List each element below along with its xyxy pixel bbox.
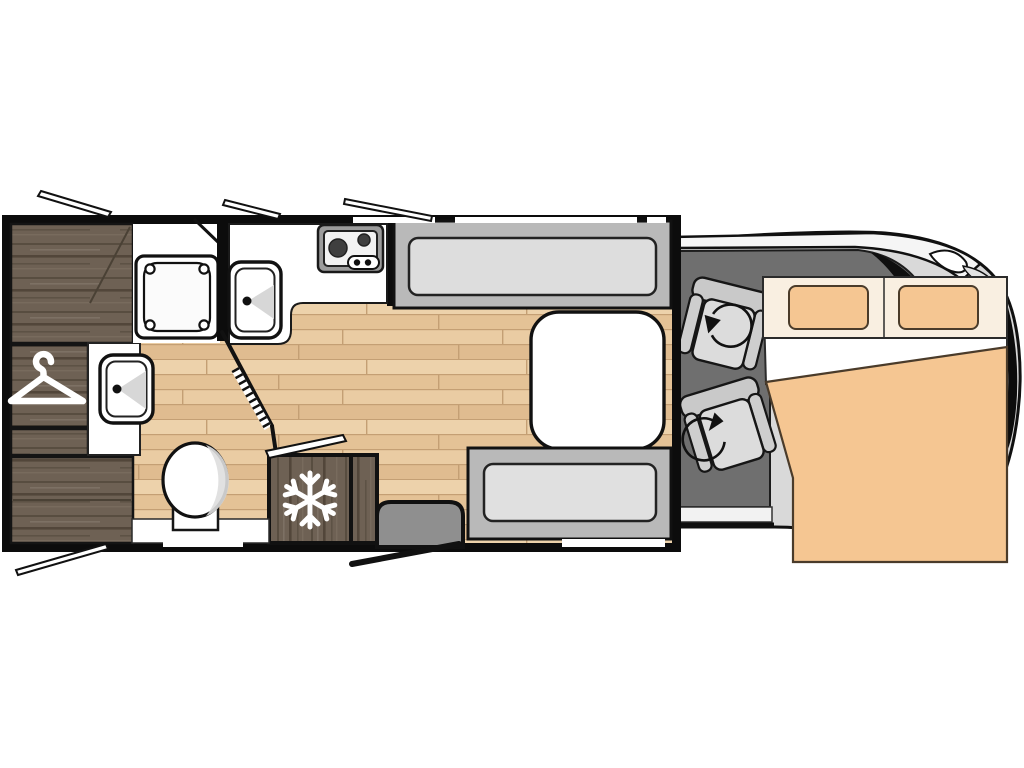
- wardrobe: [11, 345, 88, 427]
- window-top-corner: [647, 217, 666, 223]
- kitchen-sink: [229, 262, 281, 338]
- burner-large-icon: [329, 239, 347, 257]
- window-bottom-bathroom: [163, 539, 243, 547]
- shower-tray: [136, 256, 218, 338]
- faucet-icon: [243, 297, 252, 306]
- bed-duvet: [766, 347, 1007, 562]
- wall-shower-kitchen: [217, 217, 229, 341]
- faucet-icon: [113, 385, 122, 394]
- window-top-dinette: [455, 217, 637, 223]
- floorplan-svg: [0, 0, 1024, 768]
- shower: [133, 219, 221, 343]
- dinette-front-bench: [394, 221, 671, 308]
- fridge: [269, 455, 351, 543]
- bathroom-sink: [100, 355, 153, 423]
- bed-pillow-right: [899, 286, 978, 329]
- burner-small-icon: [358, 234, 370, 246]
- overcab-bed: [763, 277, 1007, 562]
- rear-cabinet: [11, 224, 133, 343]
- hob-knobs: [348, 256, 379, 269]
- side-cabinet: [351, 455, 377, 543]
- cab-side-sill: [679, 507, 772, 522]
- bed-pillow-left: [789, 286, 868, 329]
- lower-cabinet: [11, 457, 133, 543]
- habitation-box: [2, 215, 681, 552]
- entry-step: [377, 502, 463, 547]
- dinette-table: [531, 312, 664, 449]
- dinette-rear-bench: [468, 448, 671, 539]
- drawer-cabinet: [11, 429, 88, 455]
- window-bottom-dinette: [562, 539, 665, 547]
- hob: [318, 225, 383, 272]
- window-flap-rear-top: [38, 191, 111, 217]
